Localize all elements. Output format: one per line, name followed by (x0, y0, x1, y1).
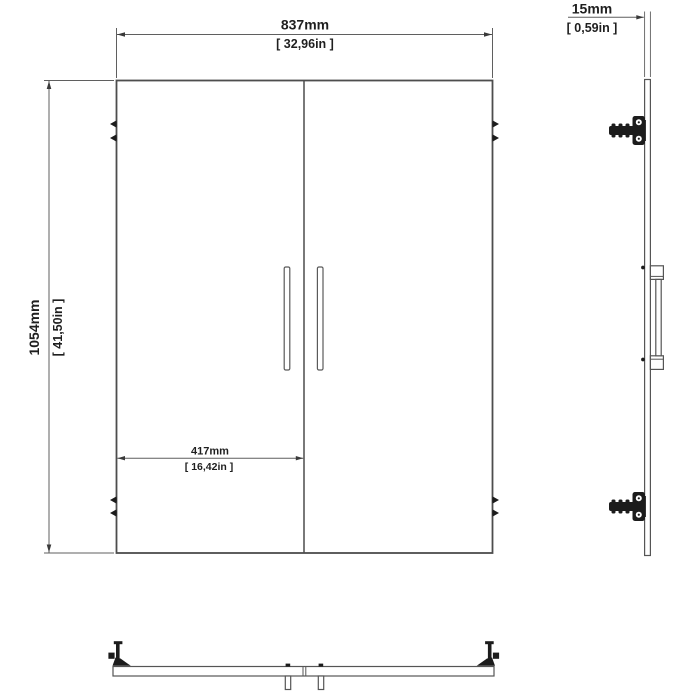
technical-drawing: 837mm [ 32,96in ] 1054mm [ 41,50in ] 417… (0, 0, 700, 700)
arrowhead-right-icon (636, 15, 644, 19)
overall-height-label-in: [ 41,50in ] (51, 299, 65, 357)
hinge-mark-icon (492, 120, 499, 127)
drawing-sheet: 837mm [ 32,96in ] 1054mm [ 41,50in ] 417… (0, 0, 700, 700)
thickness-label-mm: 15mm (572, 1, 612, 17)
thickness-label-in: [ 0,59in ] (567, 21, 618, 35)
hinge-mark-icon (110, 120, 117, 127)
side-profile-view: 15mm [ 0,59in ] (567, 1, 664, 556)
overall-height-dimension: 1054mm [ 41,50in ] (26, 81, 114, 554)
hinge-mark-icon (492, 509, 499, 516)
hinge-mark-icon (492, 134, 499, 141)
overall-width-label-in: [ 32,96in ] (276, 37, 334, 51)
hinge-icon (108, 641, 130, 666)
front-view (110, 81, 499, 554)
left-handle-plan (285, 676, 290, 690)
arrowhead-down-icon (47, 545, 52, 553)
left-door-handle (284, 267, 290, 370)
hinge-icon (609, 116, 646, 145)
handle-bottom-mount (650, 356, 663, 370)
arrowhead-right-icon (484, 32, 492, 37)
handle-screw-icon (641, 266, 645, 270)
hinge-icon (609, 492, 646, 521)
handle-top-mount (650, 266, 663, 280)
handle-fixing-mark (319, 664, 324, 667)
right-handle-plan (318, 676, 323, 690)
hinge-icon (477, 641, 499, 666)
bottom-plan-view (108, 641, 499, 689)
hinge-mark-icon (110, 496, 117, 503)
door-width-label-in: [ 16,42in ] (185, 461, 233, 473)
arrowhead-up-icon (47, 81, 52, 89)
right-door-handle (317, 267, 323, 370)
hinge-mark-icon (492, 496, 499, 503)
handle-fixing-mark (286, 664, 291, 667)
handle-bar (656, 279, 661, 355)
arrowhead-left-icon (117, 32, 125, 37)
overall-width-label-mm: 837mm (281, 17, 329, 33)
handle-screw-icon (641, 358, 645, 362)
overall-height-label-mm: 1054mm (26, 299, 42, 355)
hinge-mark-icon (110, 134, 117, 141)
hinge-mark-icon (110, 509, 117, 516)
overall-width-dimension: 837mm [ 32,96in ] (117, 17, 493, 79)
door-width-label-mm: 417mm (191, 446, 229, 458)
panel-profile (645, 80, 651, 556)
